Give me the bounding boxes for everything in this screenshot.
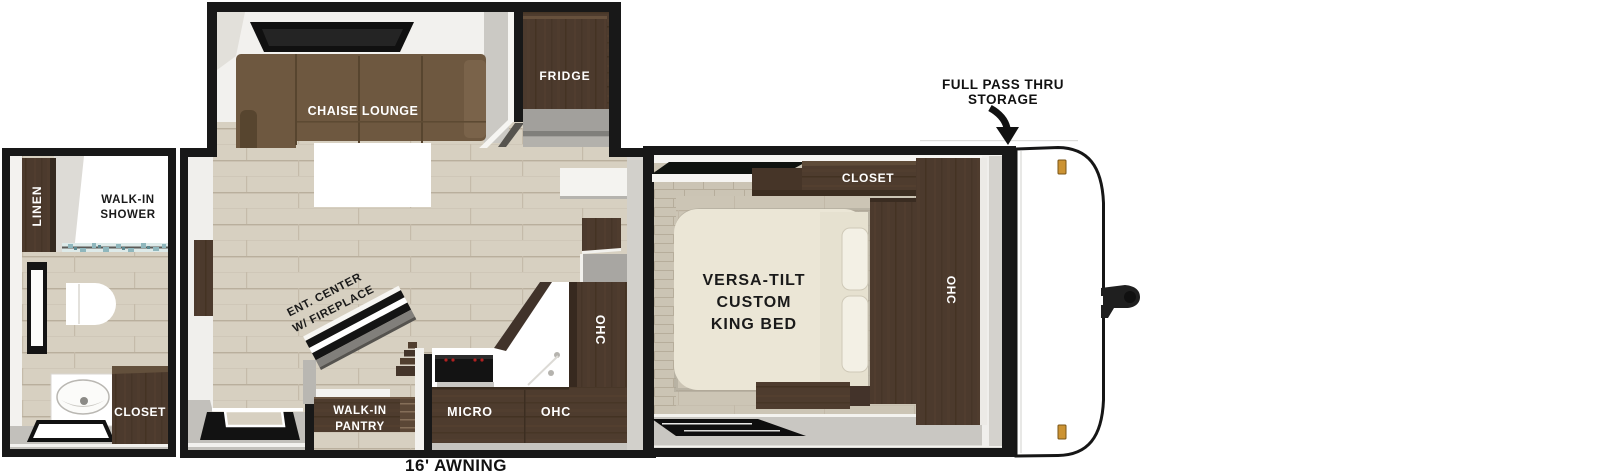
svg-text:FULL PASS THRU: FULL PASS THRU [942, 77, 1064, 92]
svg-text:OHC: OHC [944, 276, 958, 304]
svg-text:16' AWNING: 16' AWNING [405, 456, 507, 472]
svg-text:STORAGE: STORAGE [968, 92, 1038, 107]
svg-text:CLOSET: CLOSET [114, 405, 166, 419]
svg-text:PANTRY: PANTRY [335, 421, 385, 433]
svg-text:CUSTOM: CUSTOM [716, 294, 791, 311]
svg-text:CHAISE LOUNGE: CHAISE LOUNGE [308, 104, 419, 118]
svg-text:OHC: OHC [593, 315, 607, 345]
svg-text:OHC: OHC [541, 405, 571, 419]
svg-text:VERSA-TILT: VERSA-TILT [702, 272, 805, 289]
svg-text:KING BED: KING BED [711, 316, 797, 333]
svg-text:FRIDGE: FRIDGE [539, 69, 590, 83]
svg-text:WALK-IN: WALK-IN [101, 194, 154, 206]
svg-text:MICRO: MICRO [447, 405, 493, 419]
svg-text:WALK-IN: WALK-IN [333, 405, 386, 417]
svg-text:SHOWER: SHOWER [100, 209, 155, 221]
svg-text:LINEN: LINEN [30, 186, 44, 227]
svg-text:CLOSET: CLOSET [842, 171, 894, 185]
